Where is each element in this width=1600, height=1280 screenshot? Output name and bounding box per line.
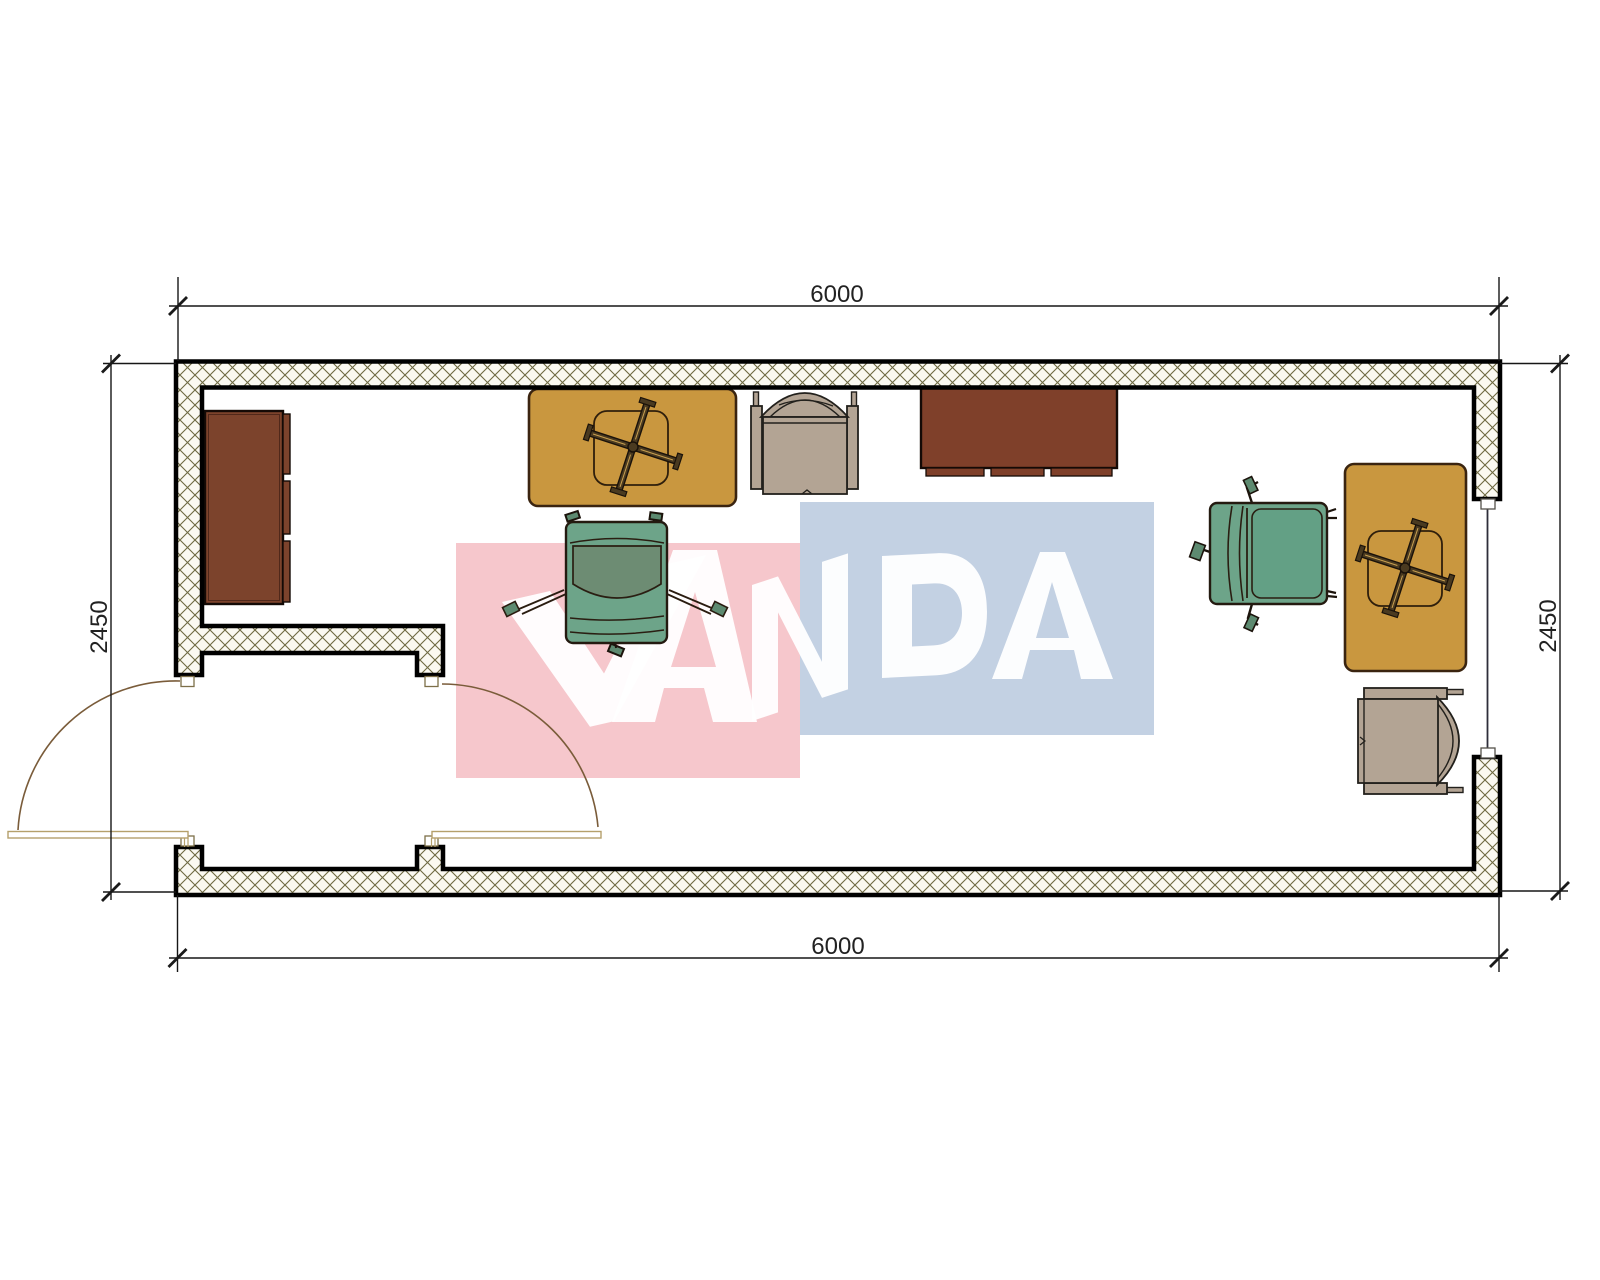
svg-text:6000: 6000 <box>811 933 864 960</box>
svg-text:2450: 2450 <box>1535 599 1562 652</box>
svg-text:2450: 2450 <box>86 600 113 653</box>
svg-text:6000: 6000 <box>810 281 863 308</box>
